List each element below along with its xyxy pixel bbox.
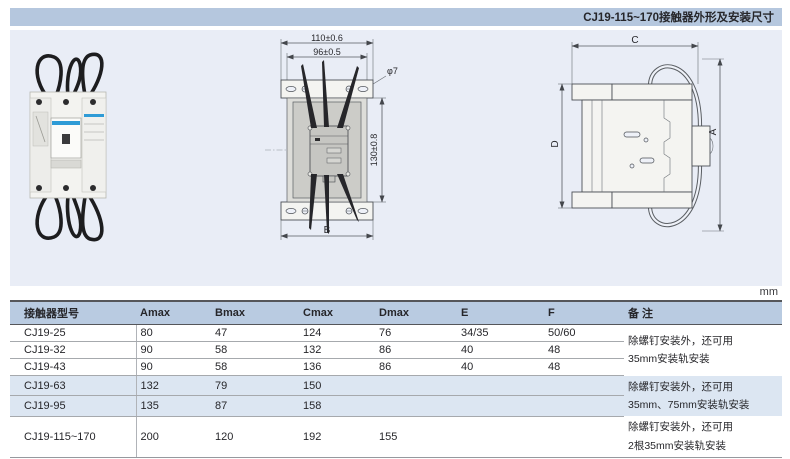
model-cell: CJ19-115~170 — [10, 416, 136, 457]
value-cell: 90 — [136, 342, 211, 359]
remark-line: 除螺钉安装外，还可用 — [628, 418, 778, 436]
value-cell: 48 — [544, 359, 624, 376]
value-cell: 120 — [211, 416, 299, 457]
model-cell: CJ19-95 — [10, 396, 136, 416]
remark-line: 除螺钉安装外，还可用 — [628, 332, 778, 350]
value-cell: 40 — [457, 342, 544, 359]
column-header-amax: Amax — [136, 301, 211, 325]
spec-table-wrap: 接触器型号 Amax Bmax Cmax Dmax E F 备 注 CJ19-2… — [10, 300, 782, 459]
value-cell: 47 — [211, 325, 299, 342]
photo-wires-top — [37, 54, 102, 98]
remark-line: 2根35mm安装轨安装 — [628, 437, 778, 455]
header-bar: CJ19-115~170接触器外形及安装尺寸 — [10, 8, 782, 26]
value-cell: 34/35 — [457, 325, 544, 342]
front-view-drawing: 110±0.6 96±0.5 φ7 — [265, 32, 405, 257]
dim-label-base: B — [324, 225, 331, 236]
photo-contactor-body — [30, 92, 106, 198]
column-header-bmax: Bmax — [211, 301, 299, 325]
value-cell — [544, 416, 624, 457]
model-cell: CJ19-32 — [10, 342, 136, 359]
table-row: CJ19-115~170 200 120 192 155 除螺钉安装外，还可用 … — [10, 416, 782, 457]
value-cell: 86 — [375, 359, 457, 376]
value-cell — [375, 376, 457, 396]
value-cell: 87 — [211, 396, 299, 416]
value-cell: 90 — [136, 359, 211, 376]
dim-label-body-height-d: D — [550, 140, 561, 147]
remark-cell: 除螺钉安装外，还可用 35mm、75mm安装轨安装 — [624, 376, 782, 417]
value-cell — [457, 416, 544, 457]
remark-line: 35mm、75mm安装轨安装 — [628, 396, 778, 414]
value-cell: 40 — [457, 359, 544, 376]
value-cell — [544, 376, 624, 396]
dim-label-hole: φ7 — [387, 66, 398, 76]
page-title: CJ19-115~170接触器外形及安装尺寸 — [583, 9, 774, 25]
value-cell: 150 — [299, 376, 375, 396]
value-cell: 58 — [211, 342, 299, 359]
value-cell — [375, 396, 457, 416]
value-cell: 79 — [211, 376, 299, 396]
value-cell: 132 — [136, 376, 211, 396]
column-header-model: 接触器型号 — [10, 301, 136, 325]
value-cell: 58 — [211, 359, 299, 376]
table-row: CJ19-63 132 79 150 除螺钉安装外，还可用 35mm、75mm安… — [10, 376, 782, 396]
value-cell: 86 — [375, 342, 457, 359]
column-header-e: E — [457, 301, 544, 325]
table-row: CJ19-25 80 47 124 76 34/35 50/60 除螺钉安装外，… — [10, 325, 782, 342]
drawings-panel: 110±0.6 96±0.5 φ7 — [10, 30, 782, 286]
value-cell: 80 — [136, 325, 211, 342]
value-cell: 48 — [544, 342, 624, 359]
header-row: 接触器型号 Amax Bmax Cmax Dmax E F 备 注 — [10, 301, 782, 325]
front-center-block — [308, 126, 350, 182]
unit-label: mm — [760, 286, 778, 298]
remark-cell: 除螺钉安装外，还可用 2根35mm安装轨安装 — [624, 416, 782, 457]
value-cell — [544, 396, 624, 416]
value-cell: 158 — [299, 396, 375, 416]
column-header-cmax: Cmax — [299, 301, 375, 325]
value-cell: 50/60 — [544, 325, 624, 342]
value-cell: 76 — [375, 325, 457, 342]
product-photo — [18, 42, 168, 274]
side-view-drawing: C — [552, 32, 732, 244]
remark-line: 除螺钉安装外，还可用 — [628, 378, 778, 396]
value-cell — [457, 376, 544, 396]
column-header-remark: 备 注 — [624, 301, 782, 325]
value-cell: 200 — [136, 416, 211, 457]
catalog-page: CJ19-115~170接触器外形及安装尺寸 — [0, 0, 790, 459]
value-cell: 136 — [299, 359, 375, 376]
photo-wires-bottom — [37, 194, 102, 240]
dim-label-inner-width: 96±0.5 — [313, 47, 340, 57]
value-cell: 132 — [299, 342, 375, 359]
value-cell — [457, 396, 544, 416]
spec-table: 接触器型号 Amax Bmax Cmax Dmax E F 备 注 CJ19-2… — [10, 300, 782, 457]
value-cell: 124 — [299, 325, 375, 342]
remark-line: 35mm安装轨安装 — [628, 350, 778, 368]
column-header-dmax: Dmax — [375, 301, 457, 325]
dim-label-height: 130±0.8 — [369, 134, 379, 166]
remark-cell: 除螺钉安装外，还可用 35mm安装轨安装 — [624, 325, 782, 376]
dim-label-outer-width: 110±0.6 — [311, 33, 343, 43]
model-cell: CJ19-25 — [10, 325, 136, 342]
value-cell: 135 — [136, 396, 211, 416]
model-cell: CJ19-43 — [10, 359, 136, 376]
value-cell: 155 — [375, 416, 457, 457]
dim-label-width-c: C — [631, 35, 638, 46]
column-header-f: F — [544, 301, 624, 325]
value-cell: 192 — [299, 416, 375, 457]
dim-label-height-a: A — [708, 128, 719, 135]
model-cell: CJ19-63 — [10, 376, 136, 396]
side-body-outline — [572, 84, 713, 208]
